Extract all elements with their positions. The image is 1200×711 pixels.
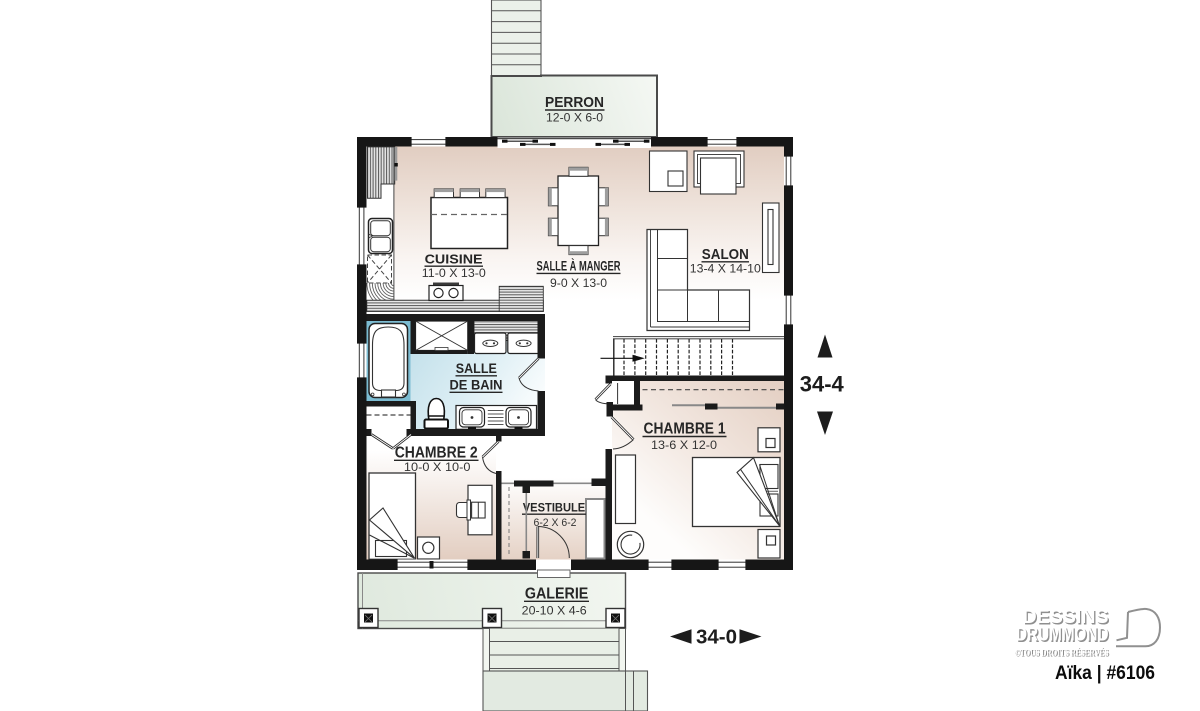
svg-text:CHAMBRE 1: CHAMBRE 1 (644, 421, 726, 438)
svg-text:CUISINE: CUISINE (425, 253, 483, 267)
svg-text:PERRON: PERRON (545, 94, 604, 111)
svg-text:SALLE À MANGER: SALLE À MANGER (537, 259, 621, 274)
svg-text:SALLE: SALLE (456, 360, 497, 376)
svg-text:13-4 X 14-10: 13-4 X 14-10 (690, 264, 761, 276)
svg-text:DE BAIN: DE BAIN (450, 377, 503, 393)
svg-text:©TOUS DROITS RÉSERVÉS: ©TOUS DROITS RÉSERVÉS (1015, 647, 1109, 659)
svg-text:11-0 X 13-0: 11-0 X 13-0 (422, 268, 486, 280)
svg-text:CHAMBRE 2: CHAMBRE 2 (395, 445, 478, 462)
svg-text:34-0: 34-0 (696, 627, 737, 649)
svg-text:SALON: SALON (702, 246, 749, 263)
svg-text:12-0 X 6-0: 12-0 X 6-0 (546, 113, 603, 125)
svg-text:20-10 X 4-6: 20-10 X 4-6 (522, 606, 587, 618)
svg-text:Aïka | #6106: Aïka | #6106 (1055, 662, 1155, 684)
svg-text:10-0 X 10-0: 10-0 X 10-0 (404, 462, 471, 474)
svg-text:VESTIBULE: VESTIBULE (523, 503, 586, 515)
svg-text:6-2 X 6-2: 6-2 X 6-2 (534, 517, 577, 529)
svg-text:DRUMMOND: DRUMMOND (1016, 624, 1109, 646)
svg-text:9-0 X 13-0: 9-0 X 13-0 (550, 278, 607, 290)
svg-text:34-4: 34-4 (800, 372, 845, 397)
svg-text:GALERIE: GALERIE (525, 586, 589, 603)
svg-text:13-6 X 12-0: 13-6 X 12-0 (651, 440, 717, 452)
